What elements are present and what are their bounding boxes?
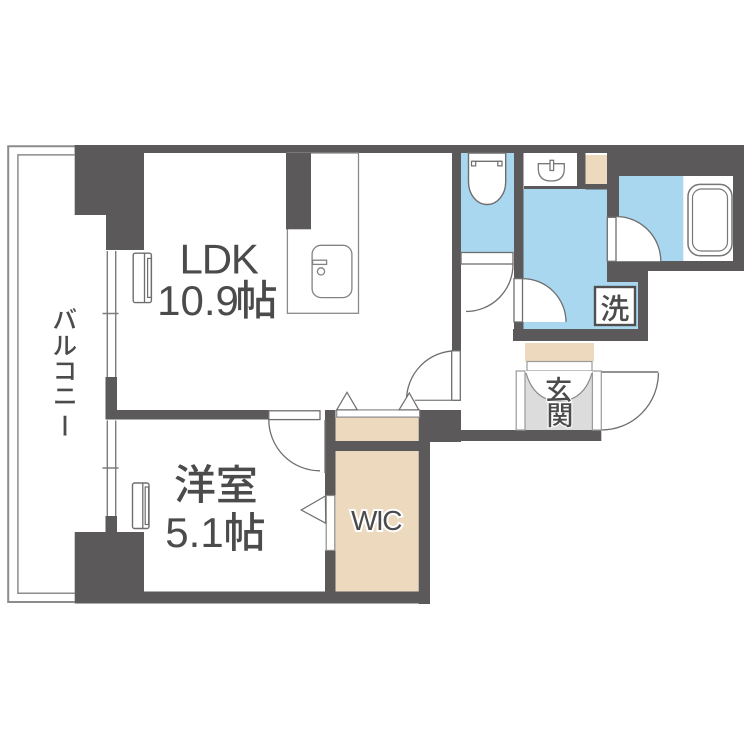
svg-text:10.9: 10.9 bbox=[157, 277, 239, 324]
svg-text:5.1: 5.1 bbox=[165, 509, 223, 556]
svg-text:LDK: LDK bbox=[180, 235, 259, 282]
svg-text:WIC: WIC bbox=[351, 505, 402, 536]
